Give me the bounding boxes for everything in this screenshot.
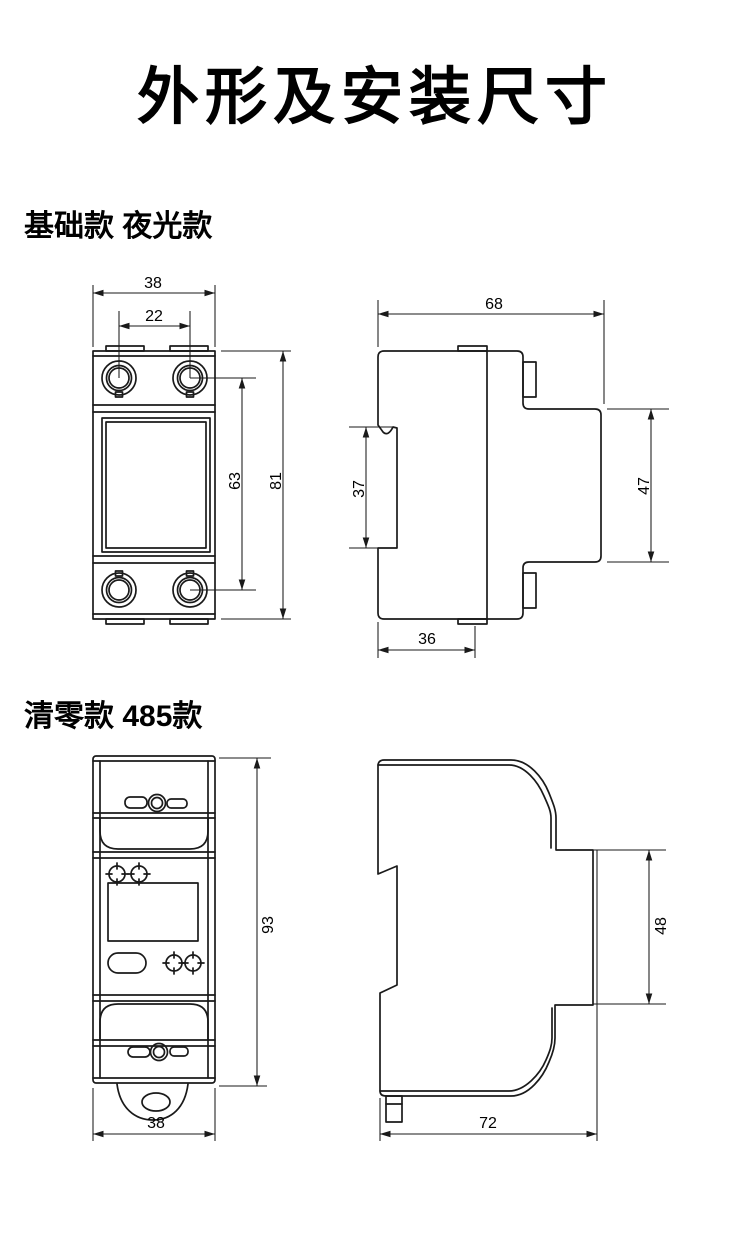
terminal-block-profile	[523, 362, 536, 397]
dim-side2-overall-depth: 72	[380, 1098, 597, 1141]
dimension-label: 47	[636, 477, 653, 495]
dim-front2-overall-width: 38	[93, 1088, 215, 1141]
top-tab-profile	[458, 346, 487, 351]
dimension-label: 38	[144, 275, 162, 292]
dimension-label: 63	[227, 472, 244, 490]
dim-side1-base-depth: 36	[378, 622, 475, 658]
front-view-basic	[93, 346, 215, 624]
top-mounting-tab	[170, 346, 208, 351]
cover-seal-screw-inner	[154, 1047, 165, 1058]
din-clip-slot	[142, 1093, 170, 1111]
dimension-label: 36	[418, 631, 436, 648]
terminal-cover-flap	[100, 1004, 208, 1040]
cover-slot	[125, 797, 147, 808]
side-view-485	[378, 760, 593, 1122]
terminal-screw	[173, 571, 207, 607]
adjust-screw	[128, 863, 150, 885]
dimension-label: 38	[147, 1115, 165, 1132]
dimension-label: 93	[260, 916, 277, 934]
dim-front1-terminal-span: 63	[190, 378, 256, 590]
cover-slot	[167, 799, 187, 808]
adjust-screw	[106, 863, 128, 885]
reset-button	[108, 953, 146, 973]
lcd-window	[108, 883, 198, 941]
meter-side-outline	[378, 351, 601, 619]
top-mounting-tab	[106, 346, 144, 351]
cover-seal-screw-inner	[152, 798, 163, 809]
dimension-label: 81	[268, 472, 285, 490]
cover-slot	[170, 1047, 188, 1056]
cover-slot	[128, 1047, 150, 1057]
dim-side1-rail-groove: 37	[349, 427, 393, 548]
meter-body-outline	[93, 756, 215, 1083]
dimension-label: 37	[351, 480, 368, 498]
terminal-cover-flap	[100, 818, 208, 849]
dimension-label: 68	[485, 296, 503, 313]
bottom-mounting-tab	[170, 619, 208, 624]
dim-side2-rail-section: 48	[593, 850, 670, 1141]
side-view-basic	[378, 346, 601, 624]
dim-side1-overall-depth: 68	[378, 296, 604, 404]
front-view-485	[93, 756, 215, 1120]
dimension-diagram: 38 22 63 81 68	[0, 0, 750, 1247]
front-panel-seam	[378, 765, 551, 848]
display-window-inner	[106, 422, 206, 548]
meter-side-outline	[378, 760, 593, 1096]
dim-front1-terminal-pitch: 22	[119, 308, 190, 378]
dimension-label: 22	[145, 308, 163, 325]
terminal-screw	[102, 571, 136, 607]
dim-front2-overall-height: 93	[219, 758, 277, 1086]
dimension-label: 48	[653, 917, 670, 935]
din-clip-tab	[386, 1096, 402, 1122]
terminal-block-profile	[523, 573, 536, 608]
bottom-mounting-tab	[106, 619, 144, 624]
product-dimension-page: 外形及安装尺寸 基础款 夜光款 清零款 485款	[0, 0, 750, 1247]
adjust-screw	[182, 952, 204, 974]
dim-side1-rail-section: 47	[607, 409, 669, 562]
front-panel-seam	[380, 1008, 552, 1091]
display-window	[102, 418, 210, 552]
dimension-label: 72	[479, 1115, 497, 1132]
bottom-tab-profile	[458, 619, 487, 624]
